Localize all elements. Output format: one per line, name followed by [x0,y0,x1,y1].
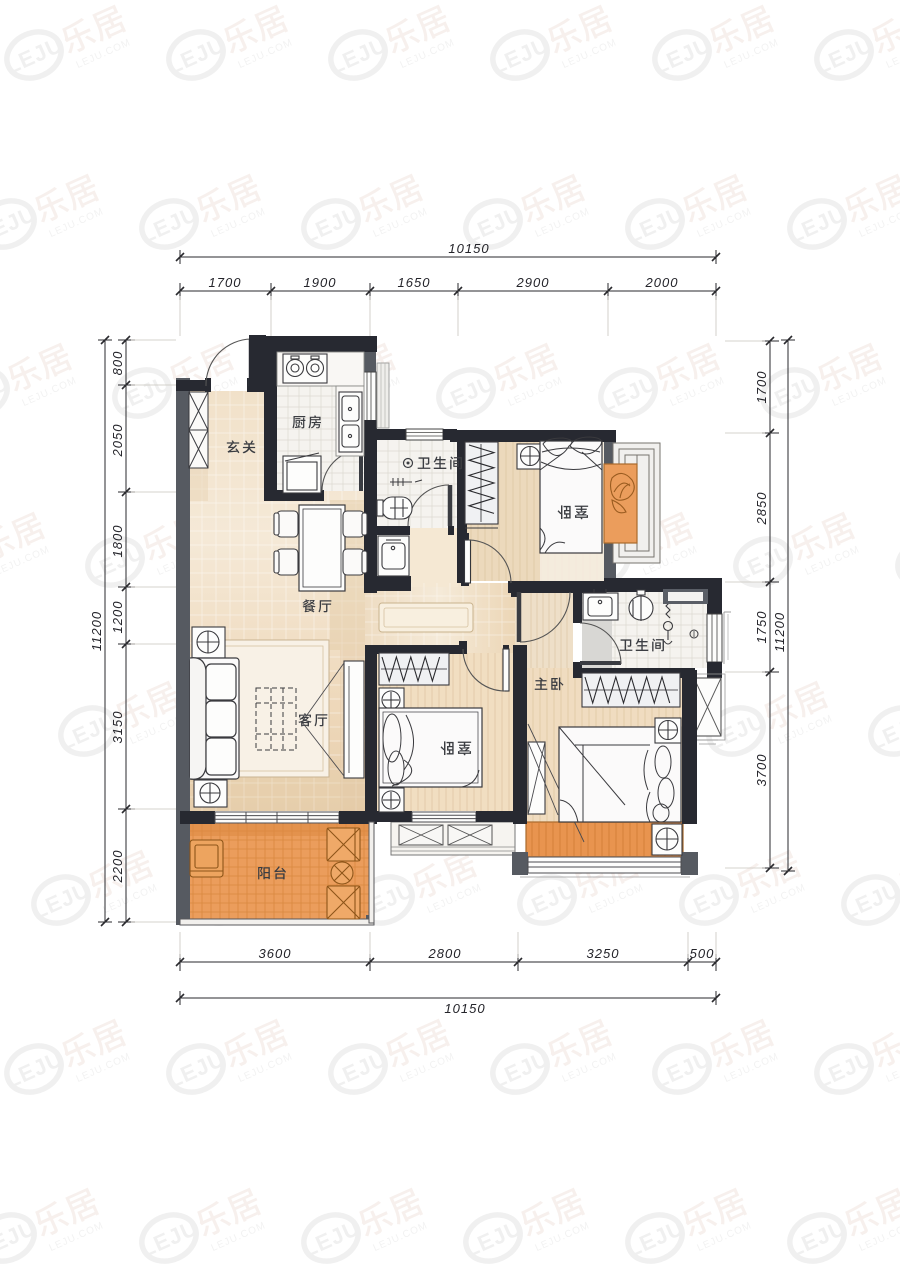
svg-text:800: 800 [110,351,125,376]
svg-text:2000: 2000 [645,275,679,290]
svg-text:2200: 2200 [110,850,125,884]
svg-text:500: 500 [690,946,715,961]
svg-text:11200: 11200 [772,612,787,652]
svg-text:1900: 1900 [304,275,337,290]
svg-text:1750: 1750 [754,611,769,644]
svg-text:3700: 3700 [754,754,769,787]
svg-text:11200: 11200 [89,611,104,651]
svg-text:10150: 10150 [448,241,489,256]
svg-text:1700: 1700 [754,371,769,404]
svg-text:1800: 1800 [110,525,125,558]
svg-text:1650: 1650 [398,275,431,290]
svg-text:10150: 10150 [444,1001,485,1016]
svg-text:3150: 3150 [110,711,125,744]
svg-text:2850: 2850 [754,492,769,526]
svg-text:3600: 3600 [259,946,292,961]
svg-text:1700: 1700 [209,275,242,290]
svg-text:2900: 2900 [516,275,550,290]
svg-text:1200: 1200 [110,601,125,634]
svg-text:3250: 3250 [587,946,620,961]
svg-text:2800: 2800 [428,946,462,961]
svg-text:2050: 2050 [110,424,125,458]
